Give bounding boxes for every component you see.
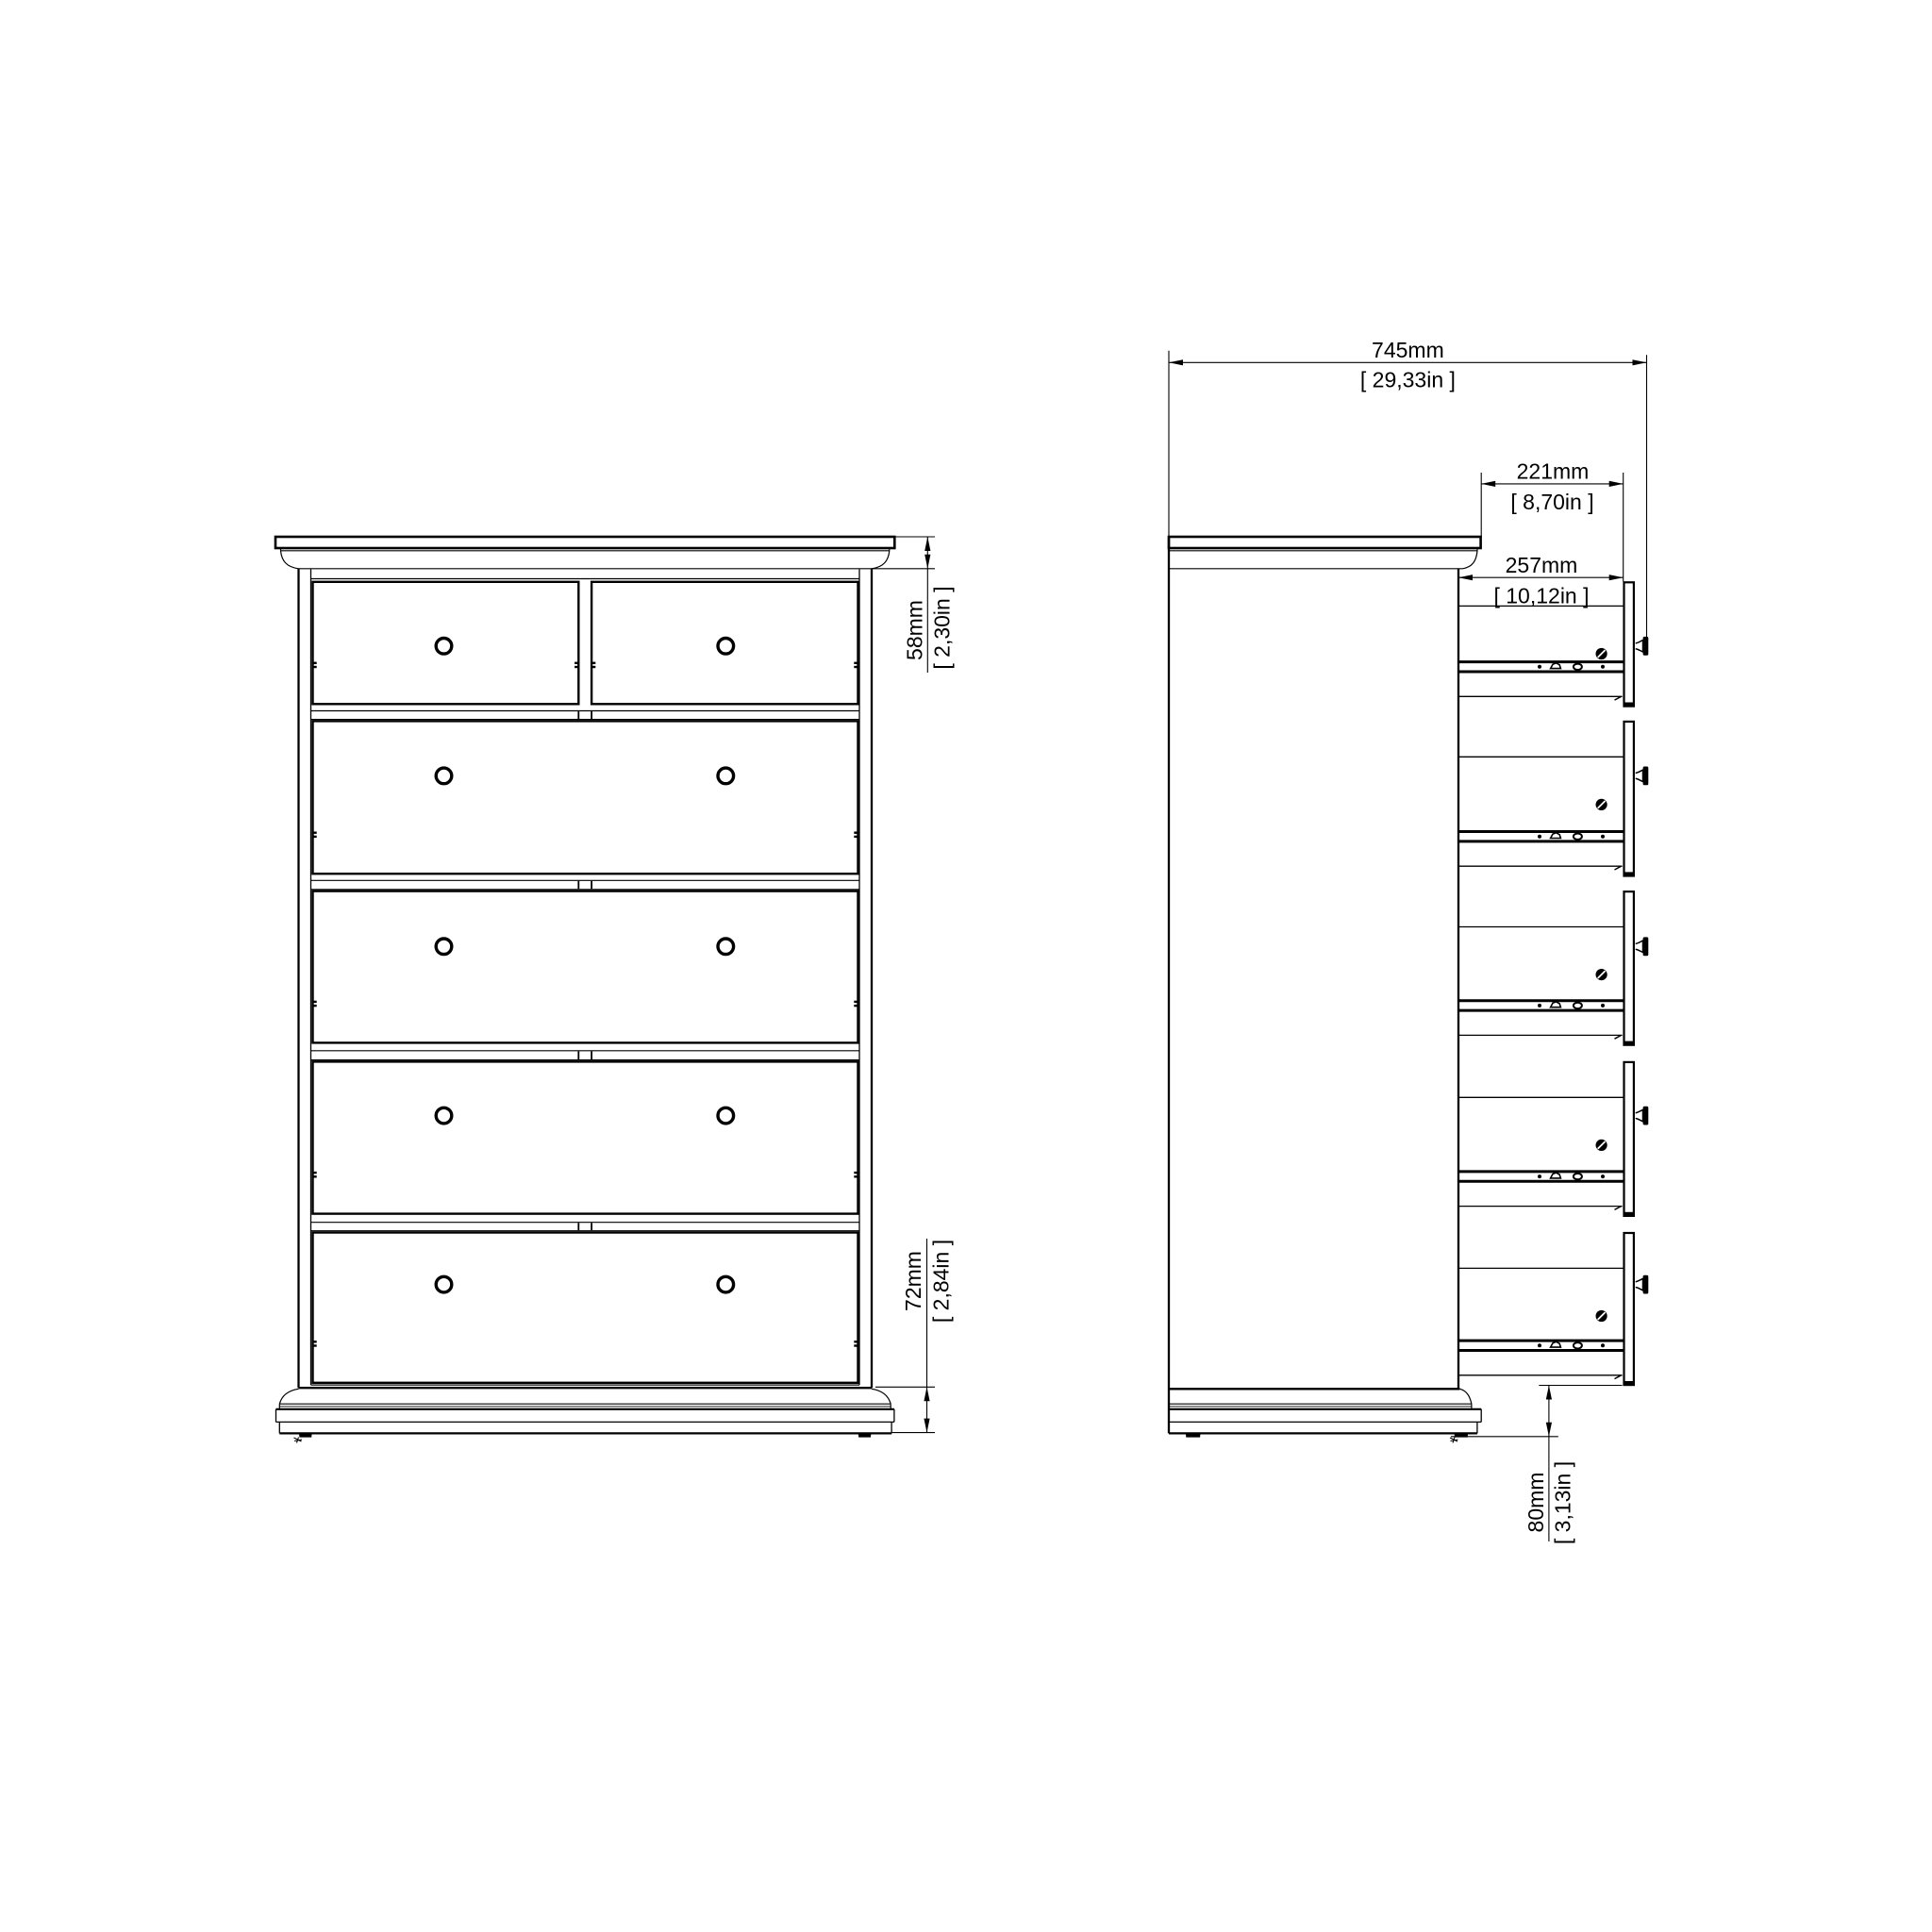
svg-text:72mm: 72mm xyxy=(901,1251,925,1311)
svg-text:[ 10,12in ]: [ 10,12in ] xyxy=(1493,584,1589,608)
svg-text:257mm: 257mm xyxy=(1506,553,1578,577)
svg-text:58mm: 58mm xyxy=(902,600,926,660)
svg-text:[ 3,13in ]: [ 3,13in ] xyxy=(1550,1461,1574,1544)
svg-text:221mm: 221mm xyxy=(1517,459,1590,484)
svg-text:80mm: 80mm xyxy=(1524,1473,1548,1533)
svg-text:[ 29,33in ]: [ 29,33in ] xyxy=(1360,368,1456,392)
svg-text:[ 8,70in ]: [ 8,70in ] xyxy=(1510,490,1593,514)
svg-text:[ 2,84in ]: [ 2,84in ] xyxy=(929,1240,954,1323)
svg-text:[ 2,30in ]: [ 2,30in ] xyxy=(929,586,954,669)
svg-text:745mm: 745mm xyxy=(1372,338,1444,362)
